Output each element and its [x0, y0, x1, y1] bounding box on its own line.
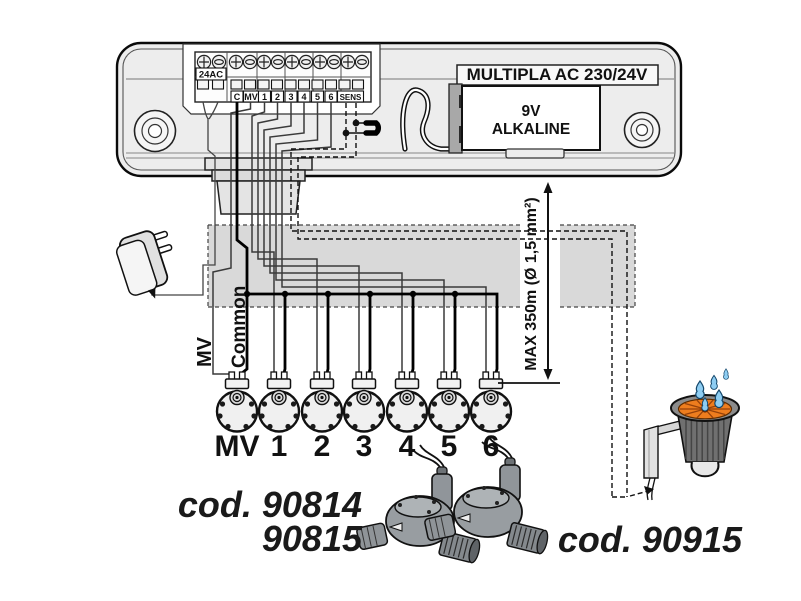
terminal-label-2: 2 [275, 92, 280, 102]
max-run-label: MAX 350m (Ø 1,5 mm²) [523, 197, 540, 370]
valve-solenoid-4: 4 [387, 372, 427, 463]
terminal-block: 24AC C MV 1 2 3 4 5 6 [183, 44, 380, 114]
terminal-label-sens: SENS [340, 93, 362, 102]
common-wire-label: Common [229, 286, 250, 368]
valve-label-mv: MV [215, 430, 260, 463]
terminal-labels: C MV 1 2 3 4 5 6 SENS [231, 91, 364, 102]
battery-voltage-label: 9V [522, 103, 542, 120]
valve-code-line2: 90815 [262, 518, 363, 559]
power-terminal-label: 24AC [199, 70, 223, 81]
valve-row: MV 1 2 3 [215, 372, 512, 463]
terminal-label-3: 3 [288, 92, 293, 102]
sensor-code-label: cod. 90915 [558, 519, 743, 560]
terminal-label-c: C [234, 92, 241, 102]
valve-solenoid-5: 5 [429, 372, 469, 463]
sensor-wire-end [612, 491, 648, 497]
valve-solenoid-mv: MV [215, 372, 260, 463]
terminal-label-5: 5 [315, 92, 320, 102]
mv-wire-label: MV [194, 336, 216, 367]
valve-label-6: 6 [483, 430, 500, 463]
wiring-diagram: MULTIPLA AC 230/24V 9V ALKALINE [0, 0, 801, 601]
terminal-label-mv: MV [244, 92, 258, 102]
mounting-hole-left [135, 111, 176, 152]
terminal-label-1: 1 [262, 92, 267, 102]
battery: 9V ALKALINE [449, 84, 600, 158]
battery-tab [506, 149, 564, 158]
rain-sensor: cod. 90915 [558, 369, 743, 560]
model-label: MULTIPLA AC 230/24V [467, 65, 648, 84]
valve-solenoid-3: 3 [344, 372, 384, 463]
terminal-label-4: 4 [301, 92, 306, 102]
valve-label-1: 1 [271, 430, 288, 463]
battery-type-label: ALKALINE [492, 121, 570, 138]
mounting-hole-right [625, 113, 660, 148]
valve-label-4: 4 [399, 430, 416, 463]
valve-solenoid-2: 2 [302, 372, 342, 463]
power-adapter [113, 225, 185, 305]
terminal-clamps [198, 80, 364, 89]
sensor-bail [692, 462, 719, 476]
valve-label-5: 5 [441, 430, 458, 463]
valve-label-3: 3 [356, 430, 373, 463]
sensor-bracket-plate [644, 426, 658, 478]
valve-solenoid-1: 1 [259, 372, 299, 463]
terminal-screws [197, 55, 368, 68]
valve-label-2: 2 [314, 430, 331, 463]
terminal-label-6: 6 [328, 92, 333, 102]
